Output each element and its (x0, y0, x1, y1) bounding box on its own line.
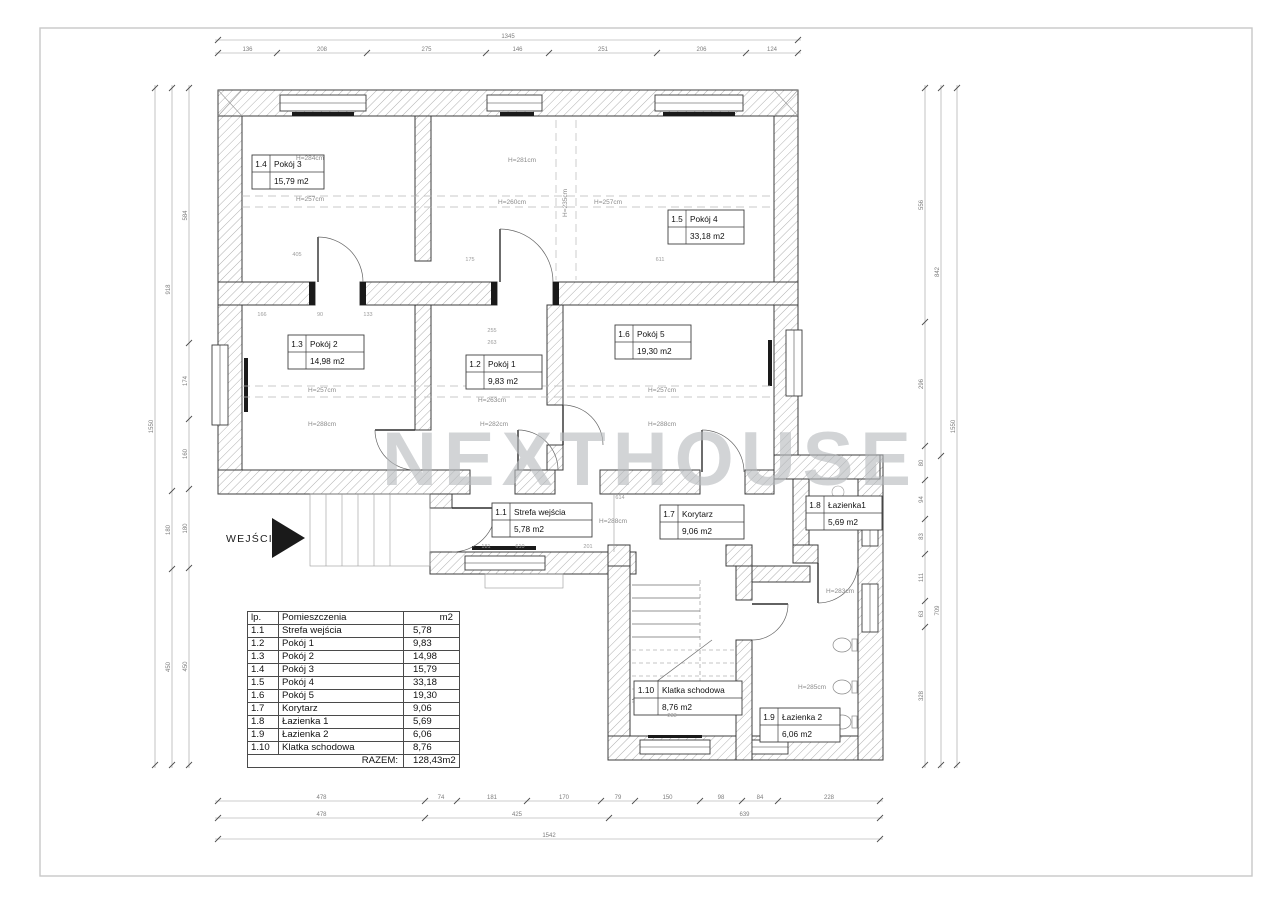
room-area: 14,98 m2 (310, 356, 345, 366)
room-num: 1.8 (809, 500, 821, 510)
svg-text:180: 180 (183, 523, 189, 534)
svg-text:556: 556 (919, 199, 925, 210)
wall-bath1-bottom (793, 545, 818, 563)
cell-lp: 1.9 (248, 729, 279, 742)
room-area: 9,06 m2 (682, 526, 712, 536)
svg-text:174: 174 (183, 375, 189, 386)
wall-mid-band-c (553, 282, 798, 305)
room-name: Łazienka1 (828, 500, 866, 510)
door (500, 229, 553, 282)
dim-right-inner: 55629680948311163328 (919, 85, 928, 768)
dim-number: 405 (292, 252, 301, 258)
height-label: H=282cm (480, 421, 508, 428)
room-area: 6,06 m2 (782, 729, 812, 739)
dim-number: 614 (615, 495, 624, 501)
height-label: H=257cm (296, 196, 324, 203)
svg-text:84: 84 (757, 795, 764, 801)
table-row: 1.1Strefa wejścia5,78 (248, 625, 460, 638)
table-row: 1.4Pokój 315,79 (248, 664, 460, 677)
window (862, 584, 878, 632)
dim-number: 90 (317, 312, 323, 318)
svg-text:450: 450 (166, 661, 172, 672)
height-label: H=257cm (648, 387, 676, 394)
room-name: Klatka schodowa (662, 685, 725, 695)
dim-bottom-row1: 47874181170791509884228 (215, 795, 883, 804)
room-num: 1.9 (763, 712, 775, 722)
svg-text:111: 111 (919, 572, 925, 582)
svg-text:74: 74 (438, 795, 445, 801)
dim-number: 263 (487, 340, 496, 346)
room-num: 1.5 (671, 214, 683, 224)
room-area: 19,30 m2 (637, 346, 672, 356)
dim-right-total: 1550 (951, 85, 960, 768)
cell-name: Pokój 4 (279, 677, 404, 690)
svg-text:1550: 1550 (149, 419, 155, 433)
room-name: Pokój 1 (488, 359, 516, 369)
room-area: 33,18 m2 (690, 231, 725, 241)
cell-area: 33,18 (404, 677, 460, 690)
window (655, 95, 743, 111)
room-num: 1.10 (638, 685, 655, 695)
cell-area: 5,69 (404, 716, 460, 729)
svg-text:228: 228 (824, 795, 835, 801)
dim-number: 610 (515, 544, 524, 550)
svg-text:275: 275 (421, 47, 432, 53)
wall-stair-corner (726, 545, 752, 566)
cell-name: Klatka schodowa (279, 742, 404, 755)
cell-name: Pokój 1 (279, 638, 404, 651)
height-label: H=283cm (826, 588, 854, 595)
svg-text:124: 124 (767, 47, 778, 53)
cell-area: 8,76 (404, 742, 460, 755)
room-num: 1.7 (663, 509, 675, 519)
wall-left-upper (218, 116, 242, 282)
room-label-strefa-wejscia: 1.1 Strefa wejścia 5,78 m2 (492, 503, 592, 537)
table-row: 1.2Pokój 19,83 (248, 638, 460, 651)
svg-text:94: 94 (919, 496, 925, 503)
cell-lp: 1.3 (248, 651, 279, 664)
wall-mid-band-b (360, 282, 497, 305)
svg-text:83: 83 (919, 533, 925, 540)
table-total-row: RAZEM: 128,43m2 (248, 755, 460, 768)
cell-name: Łazienka 2 (279, 729, 404, 742)
header-lp: lp. (248, 612, 279, 625)
cell-name: Korytarz (279, 703, 404, 716)
room-label-pokoj-2: 1.3 Pokój 2 14,98 m2 (288, 335, 364, 369)
svg-text:208: 208 (317, 47, 328, 53)
table-header-row: lp. Pomieszczenia m2 (248, 612, 460, 625)
cell-lp: 1.4 (248, 664, 279, 677)
svg-text:251: 251 (598, 47, 609, 53)
room-name: Pokój 5 (637, 329, 665, 339)
toilet (833, 638, 857, 652)
cell-name: Pokój 2 (279, 651, 404, 664)
table-row: 1.9Łazienka 26,06 (248, 729, 460, 742)
door-jamb (553, 282, 559, 305)
svg-text:1345: 1345 (501, 34, 515, 40)
svg-text:79: 79 (615, 795, 622, 801)
dim-left-total: 1550 (149, 85, 158, 768)
total-value: 128,43m2 (404, 755, 460, 768)
cell-name: Pokój 5 (279, 690, 404, 703)
room-name: Pokój 2 (310, 339, 338, 349)
room-label-lazienka-1: 1.8 Łazienka1 5,69 m2 (806, 496, 882, 530)
header-name: Pomieszczenia (279, 612, 404, 625)
room-area: 15,79 m2 (274, 176, 309, 186)
svg-text:180: 180 (166, 524, 172, 535)
room-area-table: lp. Pomieszczenia m2 1.1Strefa wejścia5,… (247, 611, 460, 768)
wall-bath2-top (752, 566, 810, 582)
room-area: 5,69 m2 (828, 517, 858, 527)
height-label: H=257cm (594, 199, 622, 206)
room-area-table-container: lp. Pomieszczenia m2 1.1Strefa wejścia5,… (247, 611, 460, 768)
room-label-korytarz: 1.7 Korytarz 9,06 m2 (660, 505, 744, 539)
table-row: 1.7Korytarz9,06 (248, 703, 460, 716)
room-num: 1.2 (469, 359, 481, 369)
dim-number: 175 (465, 257, 474, 263)
drawing-sheet: 1345 136208275146251206124 4787418117079… (0, 0, 1280, 905)
room-num: 1.3 (291, 339, 303, 349)
height-label: H=288cm (599, 518, 627, 525)
svg-text:80: 80 (919, 459, 925, 466)
entrance-arrow-icon (272, 518, 305, 558)
height-label: H=235cm (562, 189, 569, 217)
svg-text:1542: 1542 (542, 833, 556, 839)
door (752, 604, 788, 640)
radiator (292, 112, 354, 116)
wall-stair-left (608, 566, 630, 760)
cell-lp: 1.8 (248, 716, 279, 729)
svg-text:328: 328 (919, 690, 925, 701)
wall-p2-p1 (415, 305, 431, 430)
table-row: 1.3Pokój 214,98 (248, 651, 460, 664)
window (640, 740, 710, 754)
height-label: H=288cm (308, 421, 336, 428)
table-row: 1.10Klatka schodowa8,76 (248, 742, 460, 755)
svg-text:181: 181 (487, 795, 498, 801)
window (487, 95, 542, 111)
room-num: 1.6 (618, 329, 630, 339)
dim-number: 233 (667, 713, 676, 719)
cell-name: Strefa wejścia (279, 625, 404, 638)
cell-lp: 1.7 (248, 703, 279, 716)
radiator (648, 735, 702, 738)
room-label-pokoj-4: 1.5 Pokój 4 33,18 m2 (668, 210, 744, 244)
svg-text:478: 478 (316, 812, 327, 818)
svg-text:296: 296 (919, 378, 925, 389)
cell-lp: 1.5 (248, 677, 279, 690)
svg-text:1550: 1550 (951, 419, 957, 433)
height-label: H=288cm (648, 421, 676, 428)
dim-number: 166 (257, 312, 266, 318)
cell-lp: 1.10 (248, 742, 279, 755)
header-m2: m2 (404, 612, 460, 625)
window (280, 95, 366, 111)
height-label: H=260cm (498, 199, 526, 206)
svg-text:842: 842 (935, 266, 941, 277)
room-label-klatka-schodowa: 1.10 Klatka schodowa 8,76 m2 (634, 681, 742, 715)
svg-text:160: 160 (183, 448, 189, 459)
dim-top-total: 1345 (215, 34, 801, 43)
wall-mid-band-a (218, 282, 315, 305)
dim-number: 133 (363, 312, 372, 318)
svg-text:450: 450 (183, 661, 189, 672)
door-jamb (360, 282, 366, 305)
entrance-label: WEJŚCIE (226, 518, 305, 558)
floor-plan-svg: 1345 136208275146251206124 4787418117079… (0, 0, 1280, 905)
total-label: RAZEM: (248, 755, 404, 768)
radiator (500, 112, 534, 116)
cell-area: 19,30 (404, 690, 460, 703)
height-label: H=257cm (308, 387, 336, 394)
room-name: Pokój 4 (690, 214, 718, 224)
door-jamb (309, 282, 315, 305)
wall-stair-top-stub (608, 545, 630, 566)
height-label: H=284cm (296, 155, 324, 162)
room-area: 8,76 m2 (662, 702, 692, 712)
room-name: Korytarz (682, 509, 713, 519)
svg-text:206: 206 (696, 47, 707, 53)
wall-p1-p5 (547, 305, 563, 405)
height-label: H=263cm (478, 397, 506, 404)
door (818, 563, 858, 603)
svg-text:98: 98 (718, 795, 725, 801)
height-label: H=281cm (508, 157, 536, 164)
dim-number: 611 (656, 257, 665, 263)
svg-text:150: 150 (662, 795, 673, 801)
svg-text:639: 639 (739, 812, 750, 818)
svg-text:918: 918 (166, 284, 172, 295)
wall-p3-p4 (415, 116, 431, 261)
window (465, 556, 545, 570)
cell-lp: 1.6 (248, 690, 279, 703)
room-num: 1.1 (495, 507, 507, 517)
cell-area: 14,98 (404, 651, 460, 664)
room-area: 5,78 m2 (514, 524, 544, 534)
door (318, 237, 363, 282)
room-label-pokoj-1: 1.2 Pokój 1 9,83 m2 (466, 355, 542, 389)
radiator (244, 358, 248, 412)
cell-area: 5,78 (404, 625, 460, 638)
table-row: 1.8Łazienka 15,69 (248, 716, 460, 729)
dim-bottom-row2: 478425639 (215, 812, 883, 821)
radiator (663, 112, 735, 116)
room-area: 9,83 m2 (488, 376, 518, 386)
dim-number: 181 (481, 544, 490, 550)
dim-number: 201 (583, 544, 592, 550)
room-label-pokoj-5: 1.6 Pokój 5 19,30 m2 (615, 325, 691, 359)
svg-text:170: 170 (559, 795, 570, 801)
svg-text:425: 425 (512, 812, 523, 818)
svg-text:478: 478 (316, 795, 327, 801)
cell-lp: 1.2 (248, 638, 279, 651)
radiator (768, 340, 772, 386)
wall-stair-bath2-a (736, 566, 752, 600)
dim-right-mid: 842709 (935, 85, 944, 768)
dim-top-segments: 136208275146251206124 (215, 47, 801, 56)
cell-area: 15,79 (404, 664, 460, 677)
cell-name: Pokój 3 (279, 664, 404, 677)
cell-area: 9,06 (404, 703, 460, 716)
svg-text:584: 584 (183, 210, 189, 221)
room-name: Strefa wejścia (514, 507, 566, 517)
cell-area: 9,83 (404, 638, 460, 651)
window (212, 345, 228, 425)
svg-text:709: 709 (935, 605, 941, 616)
cell-area: 6,06 (404, 729, 460, 742)
dim-bottom-total: 1542 (215, 833, 883, 842)
dim-left-mid: 918180450 (166, 85, 175, 768)
room-label-lazienka-2: 1.9 Łazienka 2 6,06 m2 (760, 708, 840, 742)
dim-left-inner: 584174160180450 (183, 85, 192, 768)
table-row: 1.6Pokój 519,30 (248, 690, 460, 703)
height-label: H=285cm (798, 684, 826, 691)
door-jamb (491, 282, 497, 305)
dim-number: 255 (487, 328, 496, 334)
svg-text:63: 63 (919, 610, 925, 617)
window (786, 330, 802, 396)
entry-stoop (485, 574, 563, 588)
room-num: 1.4 (255, 159, 267, 169)
svg-text:146: 146 (512, 47, 523, 53)
watermark: NEXTHOUSE (382, 417, 918, 502)
toilet (833, 680, 857, 694)
table-row: 1.5Pokój 433,18 (248, 677, 460, 690)
svg-text:136: 136 (242, 47, 253, 53)
cell-name: Łazienka 1 (279, 716, 404, 729)
room-name: Łazienka 2 (782, 712, 823, 722)
cell-lp: 1.1 (248, 625, 279, 638)
